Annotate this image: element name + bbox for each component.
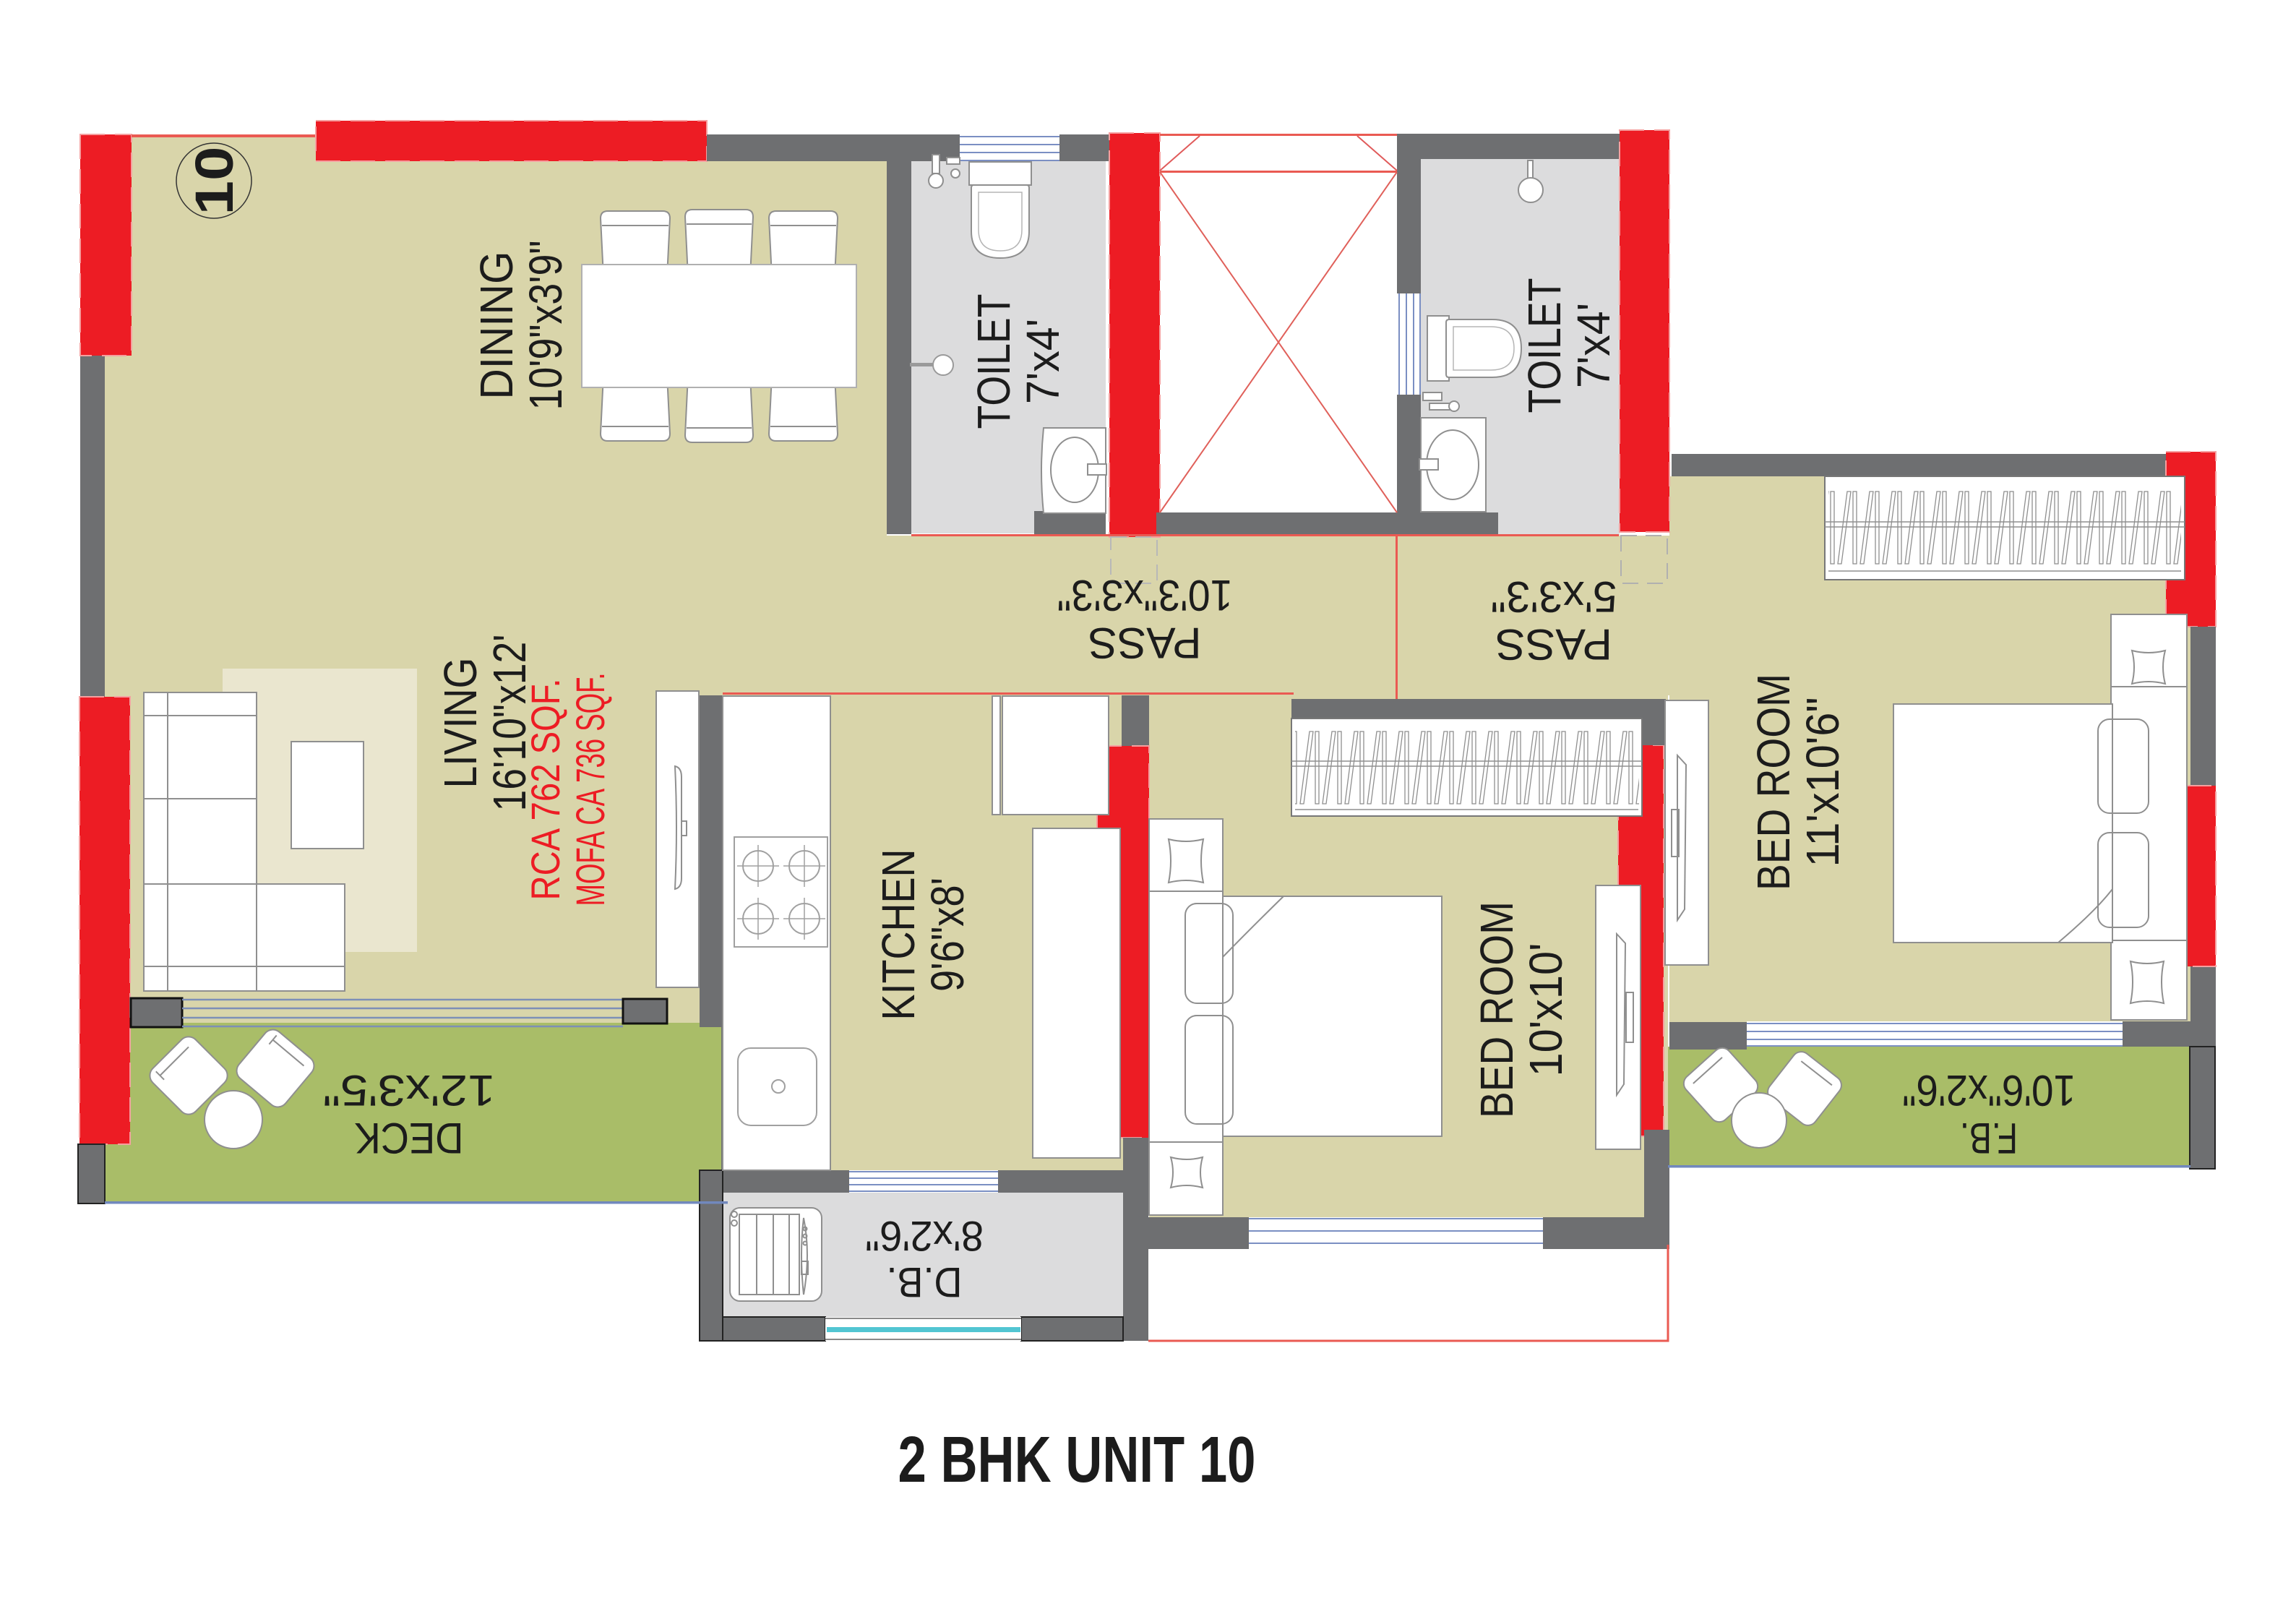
svg-text:12'x3'5": 12'x3'5" [323,1066,496,1115]
svg-text:BED ROOM: BED ROOM [1471,901,1523,1118]
svg-text:F.B.: F.B. [1960,1114,2018,1162]
svg-text:TOILET: TOILET [1518,278,1570,413]
svg-text:2 BHK UNIT 10: 2 BHK UNIT 10 [898,1424,1256,1496]
svg-text:5'x3'3": 5'x3'3" [1491,572,1617,621]
svg-text:10'9"x3'9": 10'9"x3'9" [520,241,572,411]
svg-text:10'3"x3'3": 10'3"x3'3" [1057,571,1233,619]
svg-text:RCA 762 SQF.: RCA 762 SQF. [523,679,568,901]
svg-text:LIVING: LIVING [434,658,486,789]
svg-text:D.B.: D.B. [887,1258,963,1305]
svg-text:DINING: DINING [470,252,523,400]
svg-text:10'x10': 10'x10' [1520,943,1572,1077]
svg-text:KITCHEN: KITCHEN [872,849,924,1021]
svg-text:TOILET: TOILET [968,294,1020,429]
svg-text:10: 10 [184,147,244,215]
svg-text:PASS: PASS [1495,620,1612,669]
svg-text:7'x4': 7'x4' [1017,319,1069,404]
svg-text:DECK: DECK [355,1114,464,1162]
svg-text:BED ROOM: BED ROOM [1747,674,1800,891]
svg-text:MOFA CA 736 SQF.: MOFA CA 736 SQF. [567,673,613,906]
svg-text:7'x4': 7'x4' [1568,303,1620,388]
svg-text:10'6"x2'6": 10'6"x2'6" [1902,1066,2076,1115]
svg-text:8'x2'6": 8'x2'6" [865,1212,984,1259]
svg-text:11'x10'6": 11'x10'6" [1797,698,1849,867]
svg-text:9'6"x8': 9'6"x8' [921,877,973,992]
svg-text:PASS: PASS [1088,619,1202,667]
